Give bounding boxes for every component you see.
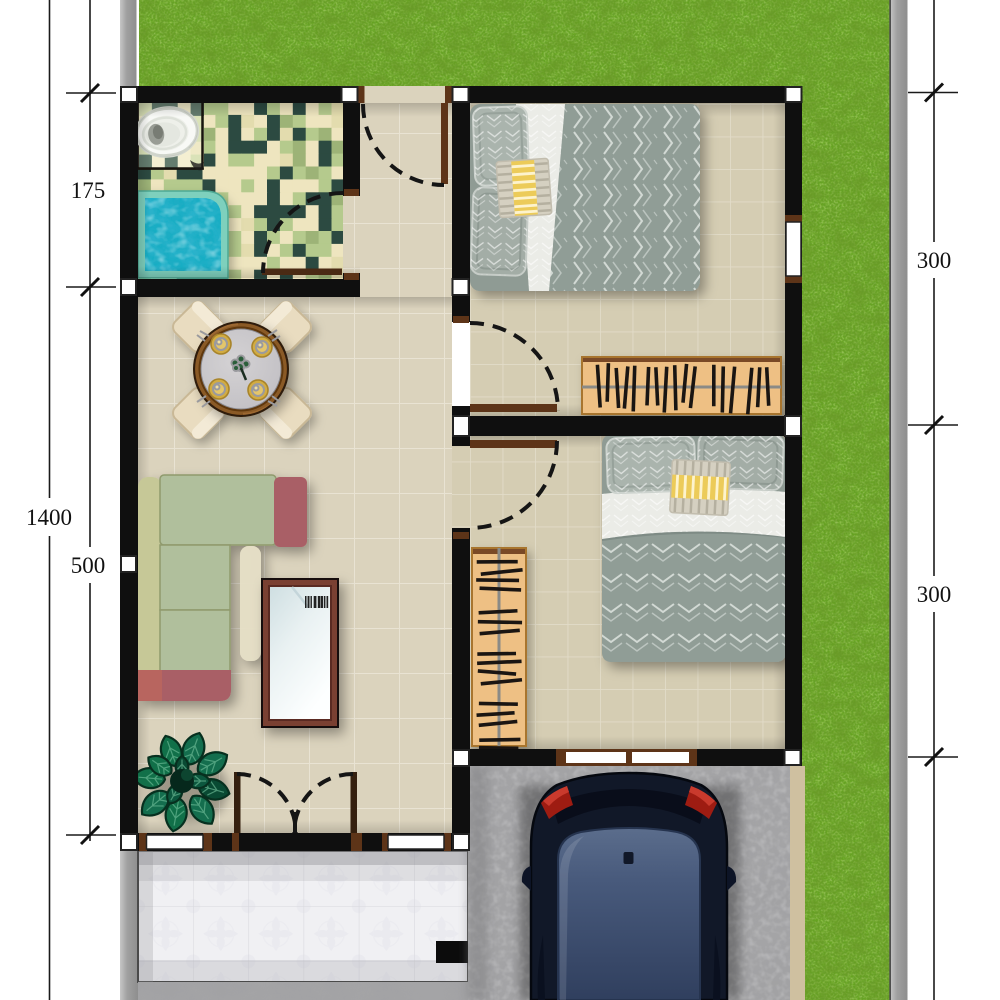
svg-text:500: 500 xyxy=(71,553,106,578)
svg-text:300: 300 xyxy=(917,582,952,607)
svg-text:300: 300 xyxy=(917,248,952,273)
svg-text:175: 175 xyxy=(71,178,106,203)
svg-text:1400: 1400 xyxy=(26,505,72,530)
